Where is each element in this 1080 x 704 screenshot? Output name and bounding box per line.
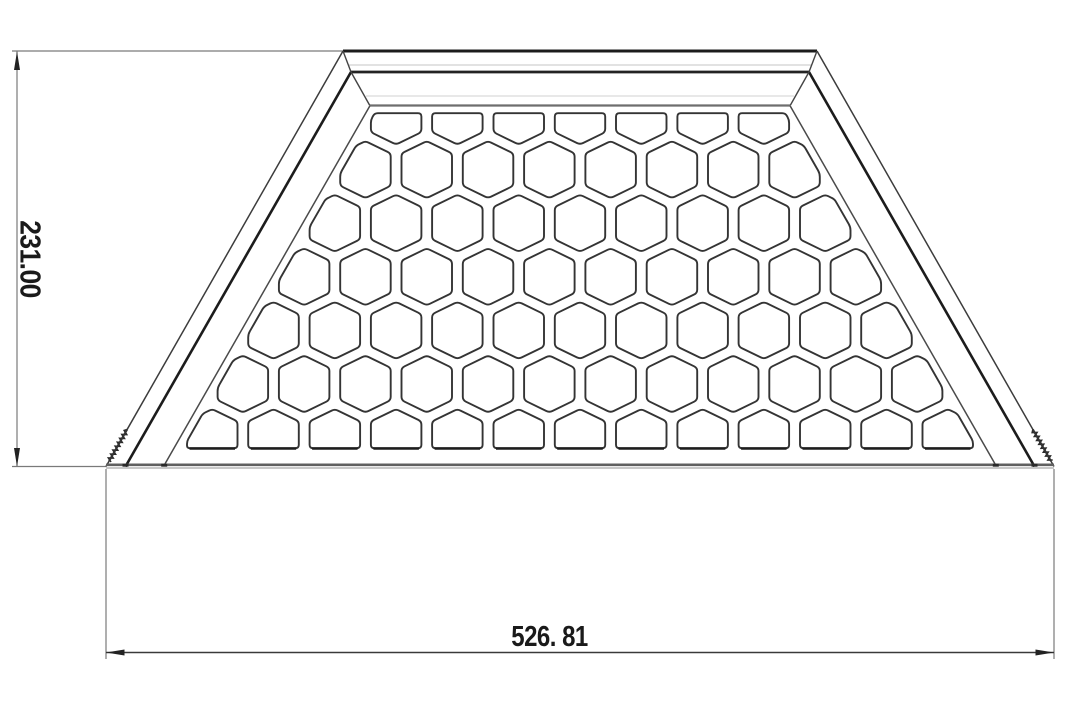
svg-text:526. 81: 526. 81 (511, 620, 588, 652)
svg-text:231.00: 231.00 (14, 220, 46, 298)
